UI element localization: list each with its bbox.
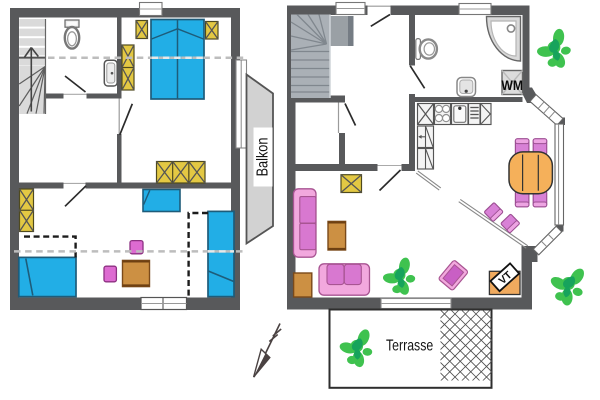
svg-text:Balkon: Balkon	[254, 138, 271, 177]
svg-text:Terrasse: Terrasse	[386, 337, 433, 355]
svg-text:WM: WM	[501, 77, 523, 93]
